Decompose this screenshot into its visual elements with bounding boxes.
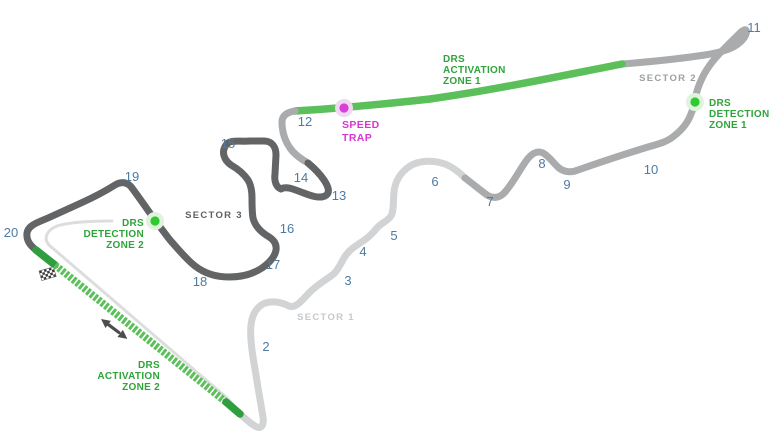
turn-label-6: 6	[431, 174, 438, 189]
drs-activation-zone-1-label: DRS ACTIVATION ZONE 1	[443, 54, 506, 87]
turn-label-8: 8	[538, 156, 545, 171]
turn-label-18: 18	[193, 274, 207, 289]
drs-detection-2-dot	[150, 216, 159, 225]
drs-detection-zone-2-label: DRS DETECTION ZONE 2	[84, 218, 145, 251]
track-map-svg: 2 3 4 5 6 7 8 9 10 11 12 13 14 15 16 17 …	[0, 0, 770, 434]
svg-text:DETECTION: DETECTION	[709, 109, 769, 120]
drs-detection-zone-1-label: DRS DETECTION ZONE 1	[709, 98, 769, 131]
sector-1-track	[240, 161, 465, 427]
drs-zone-2-start-cap	[36, 250, 55, 265]
turn-label-11: 11	[747, 20, 761, 35]
turn-label-13: 13	[332, 188, 346, 203]
drs-detection-1-dot	[690, 97, 699, 106]
turn-label-12: 12	[298, 114, 312, 129]
drs-zone-labels: DRS ACTIVATION ZONE 1 DRS DETECTION ZONE…	[84, 54, 770, 393]
svg-text:ZONE 1: ZONE 1	[709, 120, 747, 131]
svg-text:DRS: DRS	[443, 54, 465, 65]
svg-text:ZONE 2: ZONE 2	[122, 382, 160, 393]
svg-text:TRAP: TRAP	[342, 132, 372, 144]
circuit-map: 2 3 4 5 6 7 8 9 10 11 12 13 14 15 16 17 …	[0, 0, 770, 434]
turn-label-4: 4	[359, 244, 366, 259]
turn-label-17: 17	[266, 257, 280, 272]
turn-label-20: 20	[4, 225, 18, 240]
svg-text:ACTIVATION: ACTIVATION	[97, 371, 160, 382]
turn-label-16: 16	[280, 221, 294, 236]
svg-text:DRS: DRS	[138, 360, 160, 371]
svg-text:DRS: DRS	[122, 218, 144, 229]
sector-3-label: SECTOR 3	[185, 210, 243, 221]
drs-activation-zone-2-label: DRS ACTIVATION ZONE 2	[97, 360, 160, 393]
sector-1-label: SECTOR 1	[297, 312, 355, 323]
turn-label-5: 5	[390, 228, 397, 243]
drs-zone-2-end-cap	[226, 402, 240, 414]
turn-label-9: 9	[563, 177, 570, 192]
svg-text:ZONE 2: ZONE 2	[106, 240, 144, 251]
svg-text:DRS: DRS	[709, 98, 731, 109]
sector-2-track	[465, 30, 747, 198]
svg-text:ZONE 1: ZONE 1	[443, 76, 481, 87]
turn-label-15: 15	[221, 136, 235, 151]
speed-trap-label: SPEED TRAP	[342, 119, 380, 144]
turn-label-14: 14	[294, 170, 308, 185]
checkered-flag-icon	[39, 267, 56, 281]
sector-3-track	[27, 141, 329, 277]
turn-label-10: 10	[644, 162, 658, 177]
svg-text:ACTIVATION: ACTIVATION	[443, 65, 506, 76]
svg-text:SPEED: SPEED	[342, 119, 380, 131]
sector-2-label: SECTOR 2	[639, 73, 697, 84]
svg-text:DETECTION: DETECTION	[84, 229, 144, 240]
turn-label-2: 2	[262, 339, 269, 354]
turn-label-7: 7	[486, 194, 493, 209]
speed-trap-dot	[339, 103, 348, 112]
turn-label-19: 19	[125, 169, 139, 184]
turn-label-3: 3	[344, 273, 351, 288]
